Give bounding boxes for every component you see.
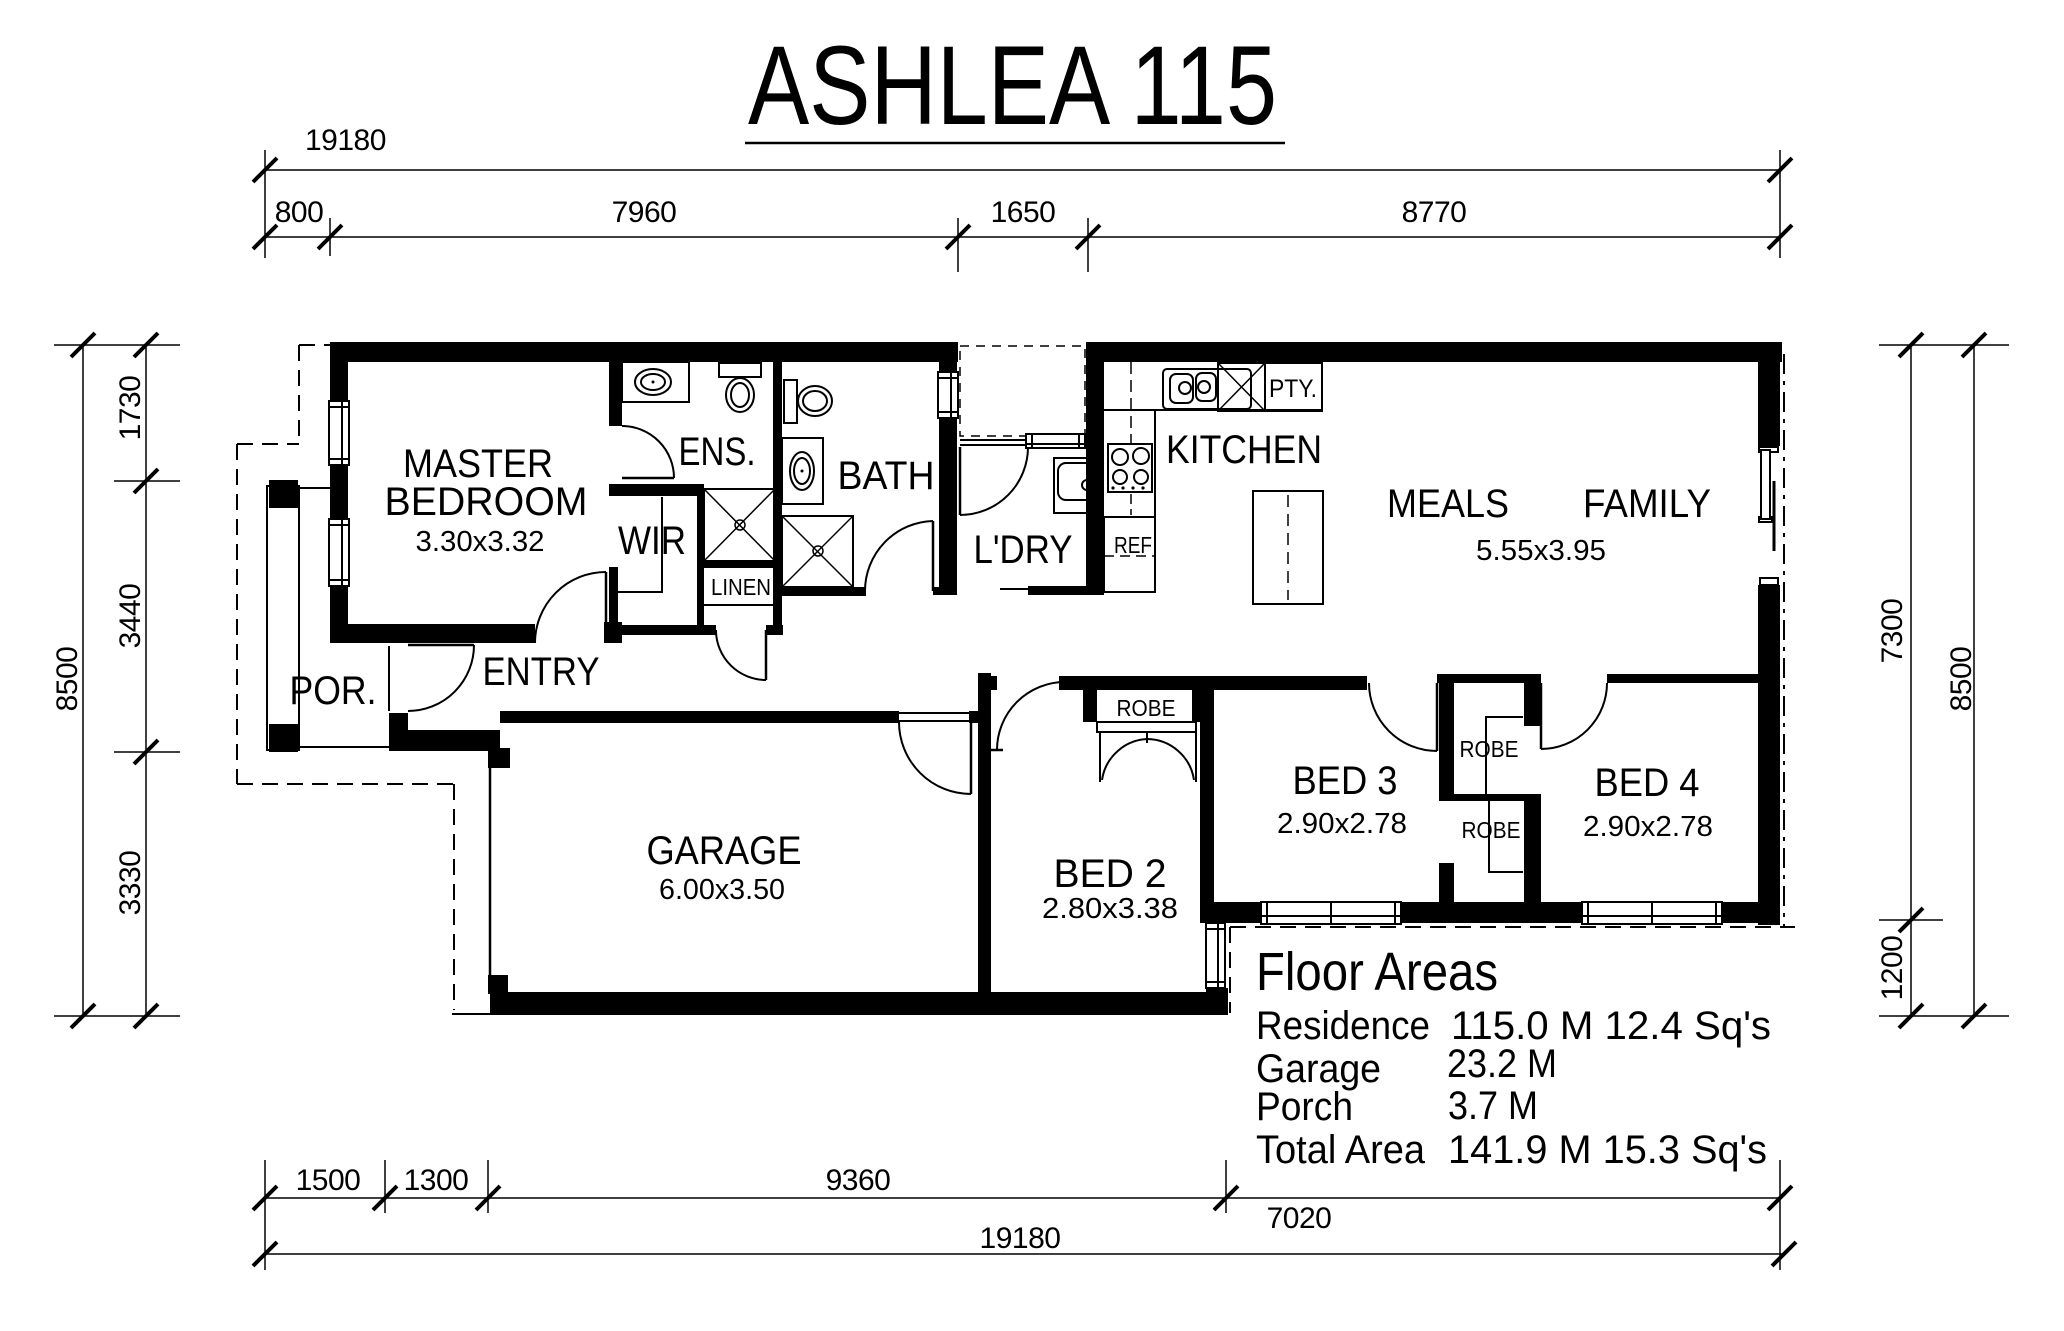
svg-text:BED 2: BED 2 <box>1054 852 1167 896</box>
svg-text:1650: 1650 <box>991 196 1056 229</box>
svg-text:1730: 1730 <box>114 376 147 441</box>
svg-text:1500: 1500 <box>296 1164 361 1197</box>
svg-text:Floor Areas: Floor Areas <box>1256 942 1498 1002</box>
svg-text:Residence: Residence <box>1256 1004 1430 1048</box>
svg-text:MEALS: MEALS <box>1387 482 1509 526</box>
svg-text:7960: 7960 <box>612 196 677 229</box>
svg-text:9360: 9360 <box>826 1164 891 1197</box>
svg-text:6.00x3.50: 6.00x3.50 <box>659 874 785 906</box>
svg-text:3.30x3.32: 3.30x3.32 <box>416 526 545 558</box>
svg-text:POR.: POR. <box>290 669 377 713</box>
svg-text:1300: 1300 <box>404 1164 469 1197</box>
svg-text:2.90x2.78: 2.90x2.78 <box>1277 808 1407 840</box>
svg-text:L'DRY: L'DRY <box>974 528 1073 572</box>
svg-text:ENS.: ENS. <box>679 430 756 474</box>
svg-text:LINEN: LINEN <box>711 574 771 600</box>
svg-text:3440: 3440 <box>114 584 147 649</box>
svg-text:BED 3: BED 3 <box>1293 759 1398 803</box>
svg-text:3.7 M: 3.7 M <box>1448 1084 1538 1128</box>
svg-text:2.80x3.38: 2.80x3.38 <box>1042 893 1178 925</box>
svg-text:ROBE: ROBE <box>1460 736 1519 762</box>
svg-text:5.55x3.95: 5.55x3.95 <box>1476 535 1606 567</box>
svg-text:8770: 8770 <box>1402 196 1467 229</box>
svg-text:ROBE: ROBE <box>1117 695 1176 721</box>
svg-text:Total Area: Total Area <box>1256 1128 1426 1172</box>
svg-text:7020: 7020 <box>1267 1202 1332 1235</box>
svg-text:ROBE: ROBE <box>1462 817 1521 843</box>
svg-text:19180: 19180 <box>980 1222 1061 1255</box>
svg-text:REF: REF <box>1114 532 1152 558</box>
svg-text:Porch: Porch <box>1256 1085 1353 1129</box>
svg-text:8500: 8500 <box>1945 647 1978 712</box>
svg-text:19180: 19180 <box>305 124 386 157</box>
svg-text:BEDROOM: BEDROOM <box>385 480 588 524</box>
svg-text:GARAGE: GARAGE <box>647 829 802 873</box>
svg-text:3330: 3330 <box>114 851 147 916</box>
svg-text:800: 800 <box>275 196 324 229</box>
svg-text:BATH: BATH <box>838 454 935 498</box>
svg-text:BED 4: BED 4 <box>1595 761 1700 805</box>
svg-text:PTY.: PTY. <box>1269 375 1317 403</box>
svg-text:23.2 M: 23.2 M <box>1447 1042 1557 1086</box>
svg-text:KITCHEN: KITCHEN <box>1166 428 1322 472</box>
svg-text:141.9 M 15.3 Sq's: 141.9 M 15.3 Sq's <box>1448 1128 1767 1172</box>
svg-text:8500: 8500 <box>51 647 84 712</box>
svg-text:2.90x2.78: 2.90x2.78 <box>1583 811 1713 843</box>
svg-text:WIR: WIR <box>618 519 686 563</box>
svg-text:7300: 7300 <box>1876 599 1909 664</box>
svg-text:ASHLEA 115: ASHLEA 115 <box>748 23 1277 148</box>
svg-text:ENTRY: ENTRY <box>483 650 600 694</box>
svg-text:1200: 1200 <box>1876 936 1909 1001</box>
svg-text:FAMILY: FAMILY <box>1583 482 1711 526</box>
